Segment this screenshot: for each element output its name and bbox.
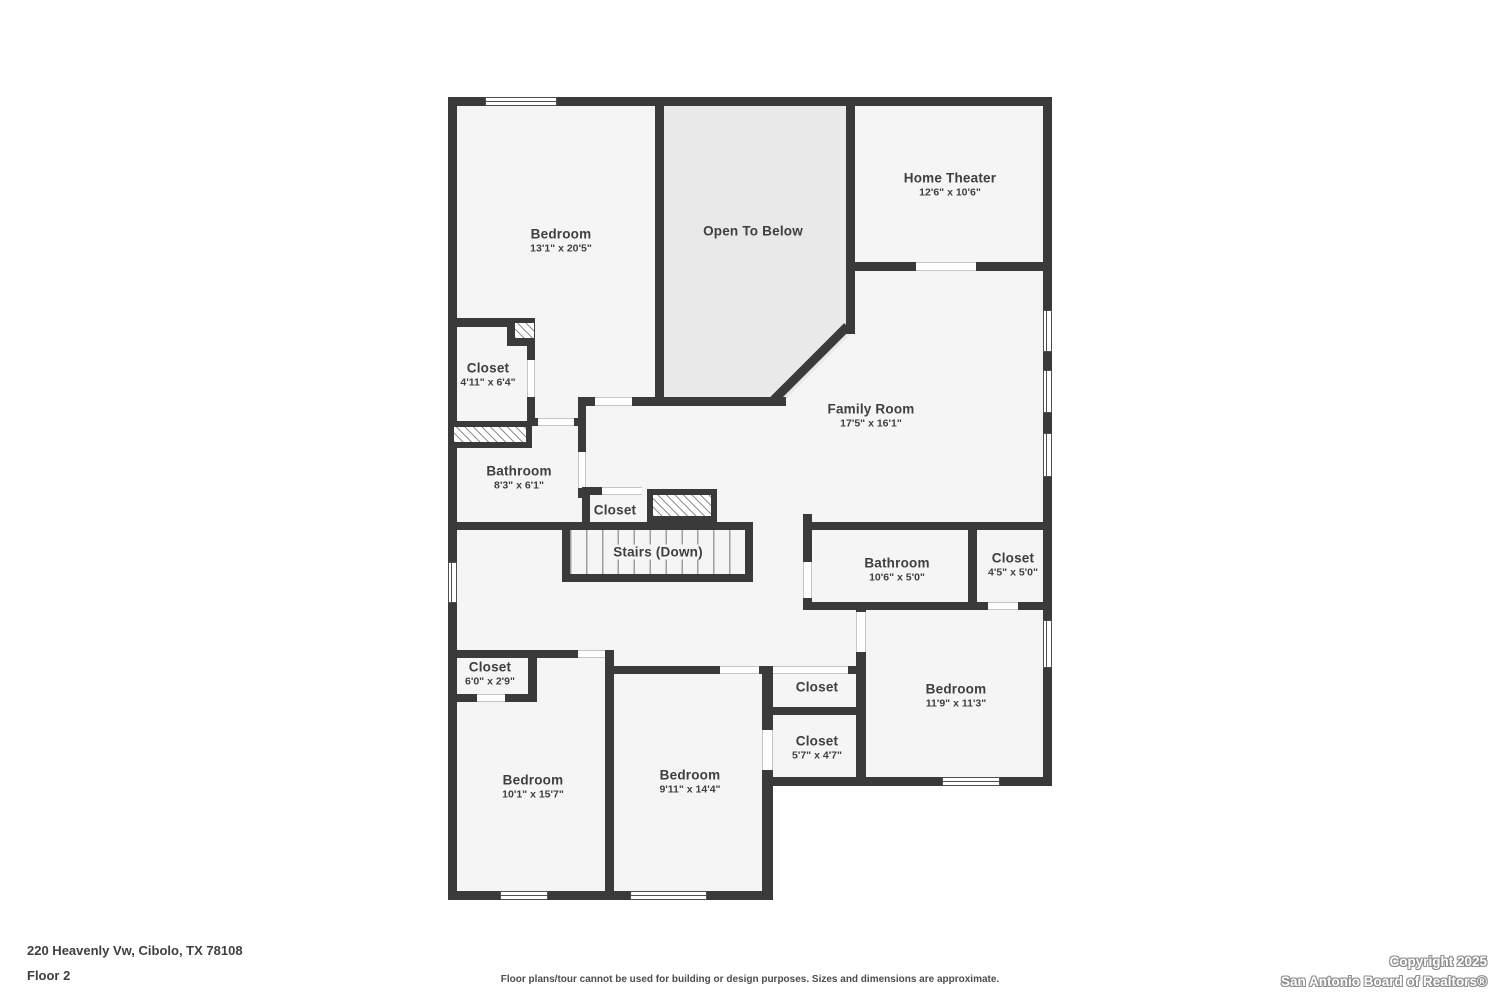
wall-segment: [803, 522, 1052, 530]
door-opening: [916, 262, 976, 271]
wall-segment: [562, 574, 753, 582]
wall-segment: [632, 397, 786, 406]
disclaimer-text: Floor plans/tour cannot be used for buil…: [0, 974, 1500, 985]
room-dimensions: 10'6" x 5'0": [864, 572, 929, 585]
door-opening: [578, 650, 605, 658]
property-address: 220 Heavenly Vw, Cibolo, TX 78108: [27, 943, 243, 958]
wall-segment: [614, 666, 720, 674]
door-opening: [477, 694, 505, 702]
wall-segment: [848, 666, 856, 674]
wall-segment: [846, 262, 916, 271]
wall-segment: [562, 530, 570, 574]
room-label: Closet4'5" x 5'0": [988, 551, 1038, 580]
room-label: Bedroom11'9" x 11'3": [926, 682, 987, 711]
hatch-area: [448, 421, 532, 448]
room-label: Bedroom10'1" x 15'7": [502, 773, 564, 802]
wall-segment: [764, 777, 1052, 786]
window-symbol: [448, 562, 457, 603]
room-name: Bedroom: [926, 682, 987, 697]
window-symbol: [1043, 433, 1052, 477]
room-name: Closet: [796, 680, 838, 695]
door-opening: [803, 562, 812, 598]
window-symbol: [1043, 310, 1052, 352]
open-to-below-area: [655, 97, 855, 403]
window-symbol: [485, 97, 557, 106]
floor-plan-page: Bedroom13'1" x 20'5"Open To BelowHome Th…: [0, 0, 1500, 1000]
wall-segment: [448, 694, 477, 702]
room-name: Stairs (Down): [607, 545, 709, 560]
room-label: Bathroom10'6" x 5'0": [864, 556, 929, 585]
room-label: Home Theater12'6" x 10'6": [904, 171, 996, 200]
room-name: Closet: [594, 503, 636, 518]
room-name: Family Room: [828, 402, 915, 417]
room-name: Bedroom: [659, 768, 720, 783]
hatch-area: [507, 323, 534, 346]
wall-segment: [448, 522, 753, 530]
room-label: Family Room17'5" x 16'1": [828, 402, 915, 431]
room-name: Closet: [460, 361, 515, 376]
wall-segment: [803, 602, 988, 610]
wall-segment: [856, 602, 866, 612]
room-dimensions: 5'7" x 4'7": [792, 750, 842, 763]
room-label: Closet6'0" x 2'9": [465, 660, 515, 689]
door-opening: [578, 452, 586, 488]
room-label: Closet5'7" x 4'7": [792, 734, 842, 763]
wall-segment: [527, 418, 538, 426]
room-name: Bedroom: [502, 773, 564, 788]
window-symbol: [630, 891, 707, 900]
wall-segment: [846, 97, 855, 334]
copyright-watermark: Copyright 2025 San Antonio Board of Real…: [1281, 952, 1487, 991]
copyright-line1: Copyright 2025: [1281, 952, 1487, 972]
wall-segment: [578, 400, 586, 452]
wall-segment: [448, 650, 578, 658]
wall-segment: [803, 514, 812, 562]
door-opening: [538, 418, 574, 426]
window-symbol: [1043, 620, 1052, 668]
door-opening: [595, 397, 632, 406]
room-name: Bathroom: [486, 464, 551, 479]
wall-segment: [655, 97, 664, 406]
room-name: Bathroom: [864, 556, 929, 571]
room-dimensions: 12'6" x 10'6": [904, 187, 996, 200]
window-symbol: [1043, 370, 1052, 413]
room-name: Bedroom: [530, 227, 592, 242]
room-dimensions: 8'3" x 6'1": [486, 480, 551, 493]
room-label: Bathroom8'3" x 6'1": [486, 464, 551, 493]
room-name: Home Theater: [904, 171, 996, 186]
door-opening: [988, 602, 1018, 610]
window-symbol: [500, 891, 548, 900]
wall-segment: [605, 650, 614, 900]
room-label: Closet4'11" x 6'4": [460, 361, 515, 390]
room-name: Closet: [465, 660, 515, 675]
wall-segment: [582, 487, 602, 495]
room-label: Bedroom13'1" x 20'5": [530, 227, 592, 256]
room-label: Stairs (Down): [607, 545, 709, 560]
room-dimensions: 11'9" x 11'3": [926, 698, 987, 711]
door-opening: [527, 360, 535, 397]
wall-segment: [448, 97, 457, 900]
wall-segment: [1018, 602, 1052, 610]
wall-segment: [968, 522, 977, 610]
hatch-area: [647, 489, 717, 522]
wall-segment: [762, 707, 866, 715]
room-dimensions: 6'0" x 2'9": [465, 676, 515, 689]
room-name: Closet: [792, 734, 842, 749]
door-opening: [720, 666, 759, 674]
wall-segment: [762, 666, 773, 730]
room-dimensions: 4'11" x 6'4": [460, 377, 515, 390]
room-label: Open To Below: [703, 224, 803, 239]
door-opening: [773, 666, 848, 674]
room-label: Bedroom9'11" x 14'4": [659, 768, 720, 797]
copyright-line2: San Antonio Board of Realtors®: [1281, 972, 1487, 992]
window-symbol: [942, 777, 1000, 786]
wall-segment: [976, 262, 1052, 271]
room-dimensions: 9'11" x 14'4": [659, 784, 720, 797]
room-name: Closet: [988, 551, 1038, 566]
wall-segment: [762, 770, 773, 900]
wall-segment: [745, 522, 753, 582]
room-dimensions: 10'1" x 15'7": [502, 789, 564, 802]
room-dimensions: 17'5" x 16'1": [828, 418, 915, 431]
wall-segment: [856, 652, 866, 785]
room-dimensions: 13'1" x 20'5": [530, 243, 592, 256]
door-opening: [602, 487, 642, 495]
door-opening: [856, 612, 866, 652]
room-label: Closet: [796, 680, 838, 695]
room-name: Open To Below: [703, 224, 803, 239]
wall-segment: [505, 694, 537, 702]
room-dimensions: 4'5" x 5'0": [988, 567, 1038, 580]
room-label: Closet: [594, 503, 636, 518]
door-opening: [762, 730, 773, 770]
